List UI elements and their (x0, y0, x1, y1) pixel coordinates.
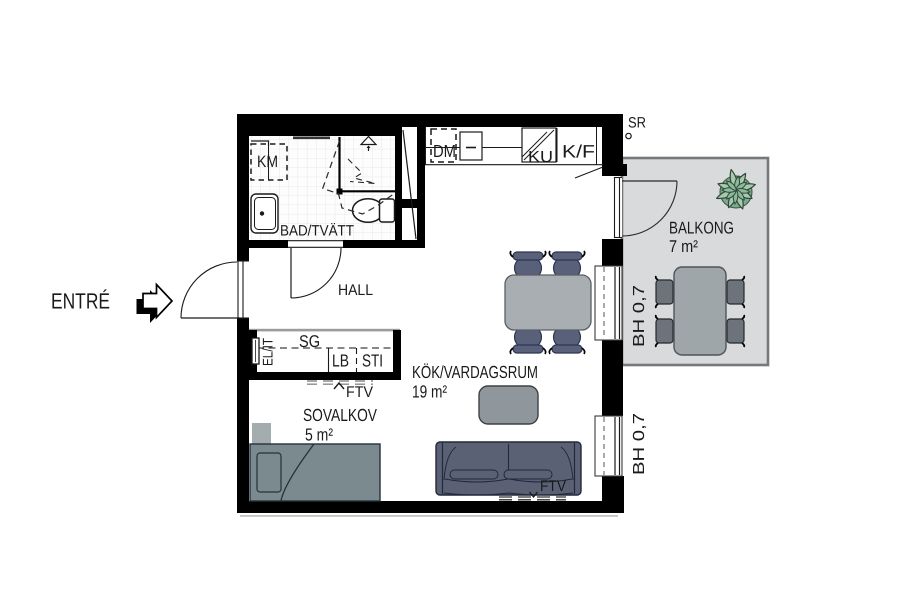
svg-text:FTV: FTV (540, 478, 567, 495)
svg-text:LB: LB (332, 351, 349, 371)
svg-text:SOVALKOV: SOVALKOV (303, 405, 377, 425)
svg-text:SG: SG (299, 332, 320, 351)
svg-text:K/F: K/F (562, 142, 595, 162)
svg-text:BAD/TVÄTT: BAD/TVÄTT (280, 223, 354, 240)
svg-text:BALKONG: BALKONG (669, 219, 734, 238)
svg-text:19 m²: 19 m² (412, 382, 447, 402)
svg-text:BH 0,7: BH 0,7 (631, 285, 648, 347)
svg-text:7 m²: 7 m² (669, 237, 698, 256)
svg-text:5 m²: 5 m² (305, 425, 333, 445)
svg-text:FTV: FTV (346, 384, 374, 401)
svg-text:STI: STI (362, 351, 383, 371)
svg-text:DM: DM (433, 141, 456, 161)
svg-text:EL/IT: EL/IT (260, 338, 276, 366)
svg-text:KU: KU (528, 149, 553, 166)
svg-text:KM: KM (257, 153, 278, 171)
svg-text:BH 0,7: BH 0,7 (631, 413, 648, 475)
svg-text:SR: SR (628, 115, 646, 132)
svg-text:ENTRÉ: ENTRÉ (51, 289, 110, 314)
svg-text:HALL: HALL (338, 282, 373, 299)
svg-text:KÖK/VARDAGSRUM: KÖK/VARDAGSRUM (412, 362, 538, 382)
